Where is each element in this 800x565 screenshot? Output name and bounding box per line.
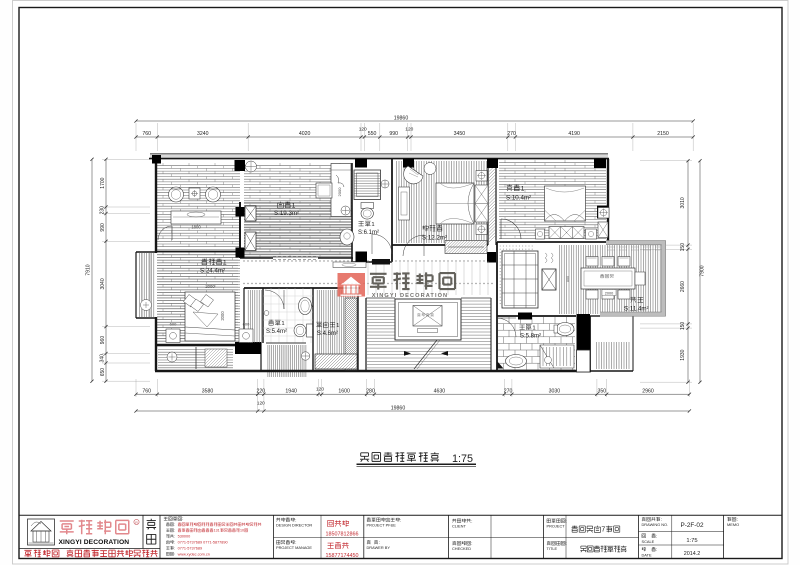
- svg-text::: :: [174, 540, 175, 544]
- svg-text:18507812866: 18507812866: [326, 531, 359, 537]
- svg-text:0771-5737689: 0771-5737689: [178, 546, 203, 550]
- svg-text:1800: 1800: [191, 225, 201, 230]
- svg-text:CHECKED: CHECKED: [452, 546, 471, 551]
- svg-text:3040: 3040: [100, 278, 106, 289]
- svg-text:530000: 530000: [178, 535, 191, 539]
- svg-text:19860: 19860: [391, 405, 406, 411]
- svg-text:2960: 2960: [642, 388, 654, 394]
- svg-text:S:19.3m²: S:19.3m²: [274, 210, 299, 217]
- svg-text:1: 1: [336, 323, 339, 329]
- svg-text:120: 120: [359, 127, 367, 133]
- svg-text:MEMO: MEMO: [727, 522, 739, 527]
- svg-text:DRAWING NO.: DRAWING NO.: [642, 522, 669, 527]
- svg-text:550: 550: [368, 131, 377, 137]
- svg-text:3240: 3240: [197, 131, 209, 137]
- svg-text::: :: [182, 516, 183, 521]
- svg-text:1: 1: [292, 202, 296, 209]
- svg-text:10: 10: [240, 529, 244, 533]
- svg-text:S:5.4m²: S:5.4m²: [266, 329, 287, 335]
- svg-text:990: 990: [100, 223, 106, 232]
- svg-text:131: 131: [214, 529, 220, 533]
- svg-text:270: 270: [507, 131, 516, 137]
- svg-text::: :: [174, 535, 175, 539]
- svg-text:1:75: 1:75: [686, 538, 697, 544]
- svg-text:2000: 2000: [220, 311, 225, 321]
- svg-text::: :: [566, 518, 567, 523]
- svg-text:PROJECT: PROJECT: [547, 523, 566, 528]
- svg-text:CLIENT: CLIENT: [452, 523, 466, 528]
- svg-text::: :: [400, 517, 401, 522]
- svg-text:1: 1: [532, 325, 535, 331]
- svg-text:S:4.6m²: S:4.6m²: [317, 331, 338, 337]
- svg-text::: :: [566, 541, 567, 546]
- svg-text:2000: 2000: [337, 187, 342, 197]
- svg-text:1930: 1930: [680, 349, 686, 360]
- svg-text:PROJECT PF&E: PROJECT PF&E: [367, 522, 397, 527]
- svg-text:S:10.4m²: S:10.4m²: [506, 194, 531, 201]
- svg-text:XINGYI DECORATION: XINGYI DECORATION: [372, 293, 448, 299]
- svg-text::: :: [656, 533, 657, 538]
- svg-text:230: 230: [100, 206, 106, 215]
- svg-text:PROJECT MANAGE: PROJECT MANAGE: [276, 545, 312, 550]
- svg-text:DATE: DATE: [642, 553, 652, 558]
- svg-text:4630: 4630: [434, 388, 446, 394]
- svg-text:350: 350: [597, 388, 606, 394]
- svg-text:220: 220: [256, 388, 265, 394]
- svg-text::: :: [471, 518, 472, 523]
- svg-text:R: R: [135, 521, 138, 525]
- svg-text:150: 150: [680, 322, 686, 331]
- svg-text:1: 1: [281, 321, 284, 327]
- svg-text::: :: [174, 523, 175, 527]
- svg-text:XINGYI DECORATION: XINGYI DECORATION: [59, 539, 130, 546]
- svg-text:15877174450: 15877174450: [326, 553, 359, 559]
- svg-text::: :: [656, 547, 657, 552]
- svg-text:2000: 2000: [605, 291, 613, 295]
- svg-text:280: 280: [366, 388, 375, 394]
- svg-text:760: 760: [142, 388, 151, 394]
- svg-text:P-2F-02: P-2F-02: [680, 522, 704, 529]
- svg-text:800: 800: [566, 276, 570, 282]
- svg-text:SCALE: SCALE: [642, 539, 655, 544]
- svg-text:1:75: 1:75: [452, 453, 473, 465]
- svg-text:7: 7: [601, 527, 605, 534]
- svg-text:1: 1: [371, 222, 374, 228]
- svg-text:4020: 4020: [299, 131, 311, 137]
- svg-text:150: 150: [680, 243, 686, 252]
- svg-text:1: 1: [223, 259, 227, 266]
- svg-text:www.xydec.com.cn: www.xydec.com.cn: [178, 552, 210, 556]
- svg-text:S:6.1m²: S:6.1m²: [358, 230, 379, 236]
- svg-text:600: 600: [170, 322, 177, 327]
- svg-text:270: 270: [504, 388, 513, 394]
- svg-text:1600: 1600: [338, 388, 350, 394]
- svg-text:4190: 4190: [568, 131, 580, 137]
- svg-text:1: 1: [521, 185, 525, 192]
- svg-text:DESIGN DIRECTOR: DESIGN DIRECTOR: [276, 522, 312, 527]
- svg-text:S:11.4m²: S:11.4m²: [624, 306, 649, 313]
- svg-text:3030: 3030: [549, 388, 561, 394]
- svg-text::: :: [174, 552, 175, 556]
- svg-text:3010: 3010: [680, 197, 686, 208]
- svg-text:19860: 19860: [394, 116, 409, 122]
- svg-text:2014.2: 2014.2: [684, 551, 701, 557]
- svg-text:S:24.4m²: S:24.4m²: [200, 268, 225, 275]
- svg-text:DRAWER BY: DRAWER BY: [367, 545, 391, 550]
- svg-text::: :: [174, 546, 175, 550]
- svg-text:760: 760: [142, 131, 151, 137]
- svg-text:2000: 2000: [205, 284, 215, 289]
- svg-text:600: 600: [243, 322, 250, 327]
- svg-text:3580: 3580: [202, 388, 214, 394]
- svg-text::: :: [174, 529, 175, 533]
- svg-text:960: 960: [100, 336, 106, 345]
- svg-text:1940: 1940: [285, 388, 297, 394]
- svg-text:990: 990: [389, 131, 398, 137]
- svg-text:650: 650: [100, 368, 106, 377]
- svg-text:2660: 2660: [680, 281, 686, 292]
- svg-text:0771-5737689 0771-5877890: 0771-5737689 0771-5877890: [178, 541, 228, 545]
- svg-text:2150: 2150: [657, 131, 669, 137]
- svg-text:7900: 7900: [700, 265, 706, 276]
- svg-text:7910: 7910: [86, 264, 92, 275]
- svg-text:S:5.8m²: S:5.8m²: [520, 334, 541, 340]
- svg-text:340: 340: [100, 354, 106, 363]
- svg-text::: :: [471, 541, 472, 546]
- svg-text:120: 120: [316, 386, 324, 392]
- svg-text:120: 120: [405, 127, 413, 133]
- svg-text:TITLE: TITLE: [547, 546, 558, 551]
- svg-text:1700: 1700: [100, 177, 106, 188]
- svg-text:3450: 3450: [454, 131, 466, 137]
- svg-text:S:12.2m²: S:12.2m²: [422, 235, 447, 242]
